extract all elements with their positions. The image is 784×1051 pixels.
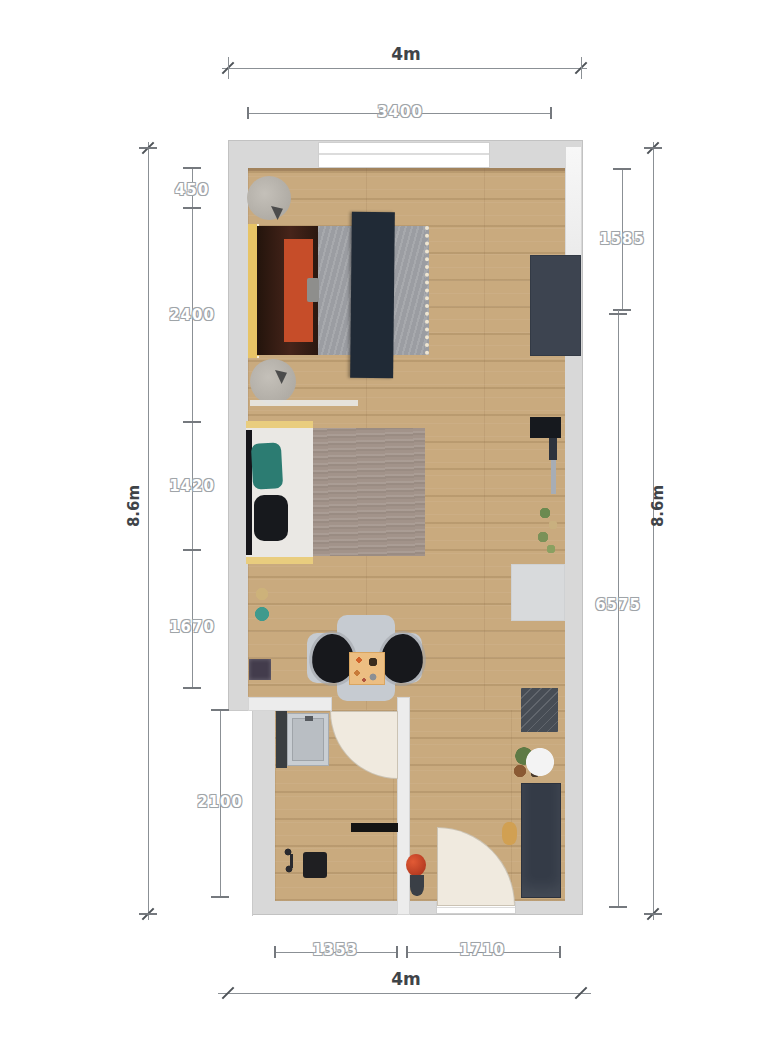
dim-tick: [406, 946, 408, 958]
dim-label-450: 450: [162, 181, 222, 199]
nightstand-top: [247, 176, 291, 220]
dim-line-left-inner: [192, 168, 193, 688]
sofa-pillow-teal: [251, 442, 283, 490]
red-figure-head: [406, 854, 426, 876]
floor-plan-canvas: 4m 3400 450 2400 1420 1670 2100 8.6m 158…: [0, 0, 784, 1051]
dim-tick: [139, 913, 157, 915]
wall-inset-cutout: [228, 710, 253, 916]
sofa-trim-bottom: [246, 557, 313, 564]
dim-tick: [609, 906, 627, 908]
dim-label-1420: 1420: [162, 477, 222, 495]
dim-tick: [183, 167, 201, 169]
floor-threshold: [250, 400, 358, 406]
tv-mount: [549, 438, 557, 460]
sofa: [246, 421, 313, 564]
wardrobe: [530, 255, 581, 356]
dim-label-1670: 1670: [162, 618, 222, 636]
dim-tick: [183, 421, 201, 423]
dim-label-top-outer: 4m: [376, 44, 436, 64]
dim-label-1585: 1585: [592, 230, 652, 248]
window-top: [318, 142, 490, 168]
plant-bathroom: [514, 744, 556, 784]
dim-tick: [396, 946, 398, 958]
dim-tick: [613, 309, 631, 311]
dim-tick: [183, 207, 201, 209]
dim-tick: [644, 147, 662, 149]
floor-lamp-small: [283, 846, 301, 874]
tv-shelf: [551, 460, 556, 494]
kitchen-shelf-bar: [351, 823, 398, 832]
interior-wall-horizontal: [248, 697, 332, 711]
dim-line-top-outer: [222, 68, 587, 69]
dim-label-top-inner: 3400: [368, 103, 432, 121]
dark-box-left-wall: [249, 659, 271, 680]
kitchen-stool: [303, 852, 327, 878]
dim-tick: [550, 107, 552, 119]
washing-machine: [287, 713, 329, 766]
kitchen-counter-dark: [276, 711, 287, 768]
dim-label-bottom-outer: 4m: [376, 969, 436, 989]
nightstand-bottom: [250, 359, 296, 404]
dim-tick: [183, 687, 201, 689]
dim-label-2100: 2100: [190, 793, 250, 811]
dim-line-bottom-outer: [218, 993, 591, 994]
dim-label-left-outer: 8.6m: [125, 476, 143, 536]
dining-table: [349, 652, 385, 685]
dim-tick: [609, 313, 627, 315]
sofa-trim-top: [246, 421, 313, 428]
red-figure: [404, 848, 428, 898]
bed-runner-navy: [350, 212, 395, 378]
area-rug: [313, 428, 425, 556]
dim-label-1710: 1710: [452, 941, 512, 959]
dim-tick: [139, 147, 157, 149]
dim-line-left-outer: [148, 142, 149, 920]
dim-tick: [274, 946, 276, 958]
sofa-pillow-black: [254, 495, 288, 541]
dim-tick: [644, 913, 662, 915]
dim-tick: [247, 107, 249, 119]
wall-niche-cabinet: [511, 564, 565, 621]
dim-tick: [211, 896, 229, 898]
bathroom-vanity: [521, 783, 561, 898]
red-figure-base: [410, 875, 424, 896]
gold-towel: [502, 822, 517, 845]
dim-label-1353: 1353: [305, 941, 365, 959]
double-bed: [248, 224, 432, 358]
dim-tick: [581, 57, 582, 79]
dim-label-2400: 2400: [162, 306, 222, 324]
dim-tick: [183, 549, 201, 551]
plant-left-wall: [252, 586, 272, 622]
tv: [530, 417, 561, 438]
dim-tick: [559, 946, 561, 958]
plant-by-tv: [537, 503, 561, 559]
dim-tick: [228, 57, 229, 79]
dim-label-6575: 6575: [588, 596, 648, 614]
dim-label-right-outer: 8.6m: [649, 476, 667, 536]
dim-tick: [211, 709, 229, 711]
dim-tick: [613, 168, 631, 170]
wall-art-dark: [521, 688, 558, 732]
washer-knob: [305, 716, 313, 721]
bed-tray: [307, 278, 319, 302]
